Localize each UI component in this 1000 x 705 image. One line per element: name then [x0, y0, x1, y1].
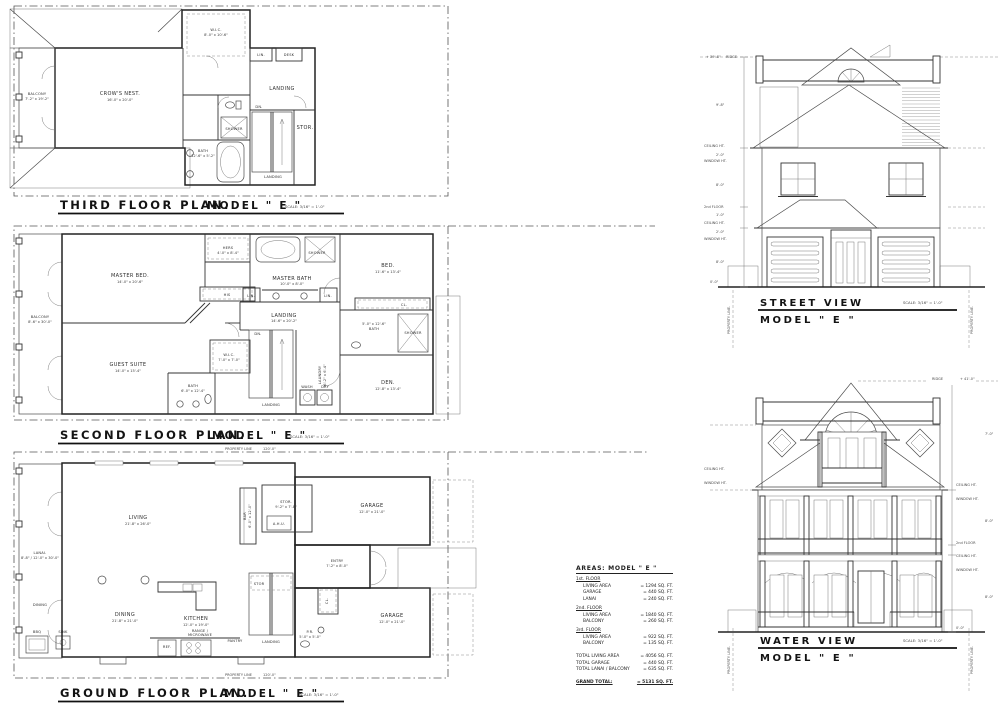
- room-label-guest: GUEST SUITE: [110, 362, 147, 368]
- dim-8-0-b: 8'-0": [716, 260, 725, 264]
- ceiling-ht-label: CEILING HT.: [956, 483, 977, 487]
- room-label-stor: STOR.: [297, 125, 314, 131]
- room-label-garage2: GARAGE: [380, 613, 403, 619]
- driveway: [398, 480, 476, 655]
- room-dim-wic: 7'-0" x 7'-0": [218, 358, 240, 362]
- areas-total-living: TOTAL LIVING AREA= 4056 SQ. FT.: [576, 654, 673, 661]
- window-right: [886, 163, 926, 197]
- room-label-entry: ENTRY: [331, 559, 344, 563]
- window-ht-label-left: WINDOW HT.: [704, 481, 727, 485]
- room-label-laundry: LAUNDRY: [318, 365, 322, 384]
- room-dim-kitchen: 12'-0" x 19'-0": [183, 623, 209, 627]
- street-view-caption: STREET VIEW SCALE: 3/16" = 1'-0" MODEL "…: [727, 290, 974, 348]
- entry-door: [858, 571, 884, 623]
- room-dim-dining: 21'-8" x 21'-0": [112, 619, 138, 623]
- room-dim-lanai: 8'-8" / 12'-0" x 30'-0": [21, 556, 59, 560]
- room-label-cl: CL.: [325, 598, 329, 604]
- ground-storey-porch: [758, 555, 942, 632]
- ridge-elev: + 41'-0": [960, 377, 975, 381]
- second-floor-plan: BALCONY 8'-6" x 30'-0" MASTER BED. 14'-0…: [14, 226, 655, 444]
- room-label-wic: W.I.C.: [210, 28, 221, 32]
- second-floor-labels: BALCONY 8'-6" x 30'-0" MASTER BED. 14'-0…: [28, 246, 422, 407]
- room-dim-living: 21'-8" x 26'-0": [125, 522, 151, 526]
- areas-section-1st: 1st. FLOOR: [576, 577, 673, 584]
- second-floor-label: 2nd FLOOR: [956, 541, 976, 545]
- room-label-stor: STOR.: [280, 500, 292, 504]
- room-dim-garage1: 12'-0" x 21'-0": [359, 510, 385, 514]
- garage-door-right: [878, 237, 934, 287]
- room-label-his: HIS: [224, 293, 231, 297]
- plan-title: GROUND FLOOR PLAN.: [60, 686, 250, 700]
- kitchen-fixtures: [98, 488, 256, 656]
- room-label-landing2: LANDING: [262, 403, 280, 407]
- areas-row: LANAI= 240 SQ. FT.: [576, 597, 673, 604]
- drawing-sheet: W.I.C. 8'-0" x 10'-6" LIN. DESK LANDING …: [0, 0, 1000, 705]
- front-door: [831, 230, 871, 287]
- room-label-master-bed: MASTER BED.: [111, 273, 149, 279]
- room-label-stor2: STOR: [254, 582, 265, 586]
- property-length-top: 120'-0": [263, 447, 276, 451]
- room-label-kitchen: KITCHEN: [184, 616, 208, 622]
- room-dim-laundry: 6'-2" x 6'-4": [323, 364, 327, 386]
- gable: [802, 48, 900, 85]
- areas-section-2nd: 2nd. FLOOR: [576, 606, 673, 613]
- water-view-caption: WATER VIEW SCALE: 3/16" = 1'-0" MODEL " …: [727, 628, 974, 692]
- stairs: [249, 330, 293, 398]
- room-label-hers: HERS: [223, 246, 234, 250]
- window-ht-label-2: WINDOW HT.: [956, 568, 979, 572]
- room-label-bbq: BBQ: [33, 630, 41, 634]
- areas-grand-total: GRAND TOTAL:= 5131 SQ. FT.: [576, 680, 673, 687]
- balcony-rail: [16, 234, 62, 414]
- roof-pitch-symbol: [870, 45, 890, 57]
- dim-7-0: 7'-0": [985, 432, 994, 436]
- room-dim-entry: 7'-2" x 8'-0": [326, 564, 348, 568]
- room-dim-den: 12'-8" x 13'-4": [375, 387, 401, 391]
- fence-left: [728, 610, 756, 632]
- third-floor-plan: W.I.C. 8'-0" x 10'-6" LIN. DESK LANDING …: [10, 6, 448, 214]
- window-ht-label: WINDOW HT.: [956, 497, 979, 501]
- master-bath-fixtures: [243, 237, 337, 302]
- areas-title: AREAS: MODEL " E ": [576, 565, 673, 574]
- fence-right: [940, 266, 970, 287]
- ground-storey: [762, 228, 940, 287]
- stairs: [252, 112, 292, 172]
- room-dim-range: MICROWAVE: [188, 633, 213, 637]
- second-storey-porch: [758, 490, 942, 555]
- room-label-crows-nest: CROW'S NEST.: [100, 91, 140, 97]
- room-label-bed: BED.: [381, 263, 394, 269]
- dim-2-0: 2'-0": [716, 153, 725, 157]
- room-dim-crows-nest: 16'-0" x 20'-0": [107, 98, 133, 102]
- room-dim-balcony: 7'-2" x 19'-2": [25, 97, 49, 101]
- room-label-cl: CL.: [401, 303, 407, 307]
- architectural-drawing: W.I.C. 8'-0" x 10'-6" LIN. DESK LANDING …: [0, 0, 1000, 705]
- room-label-lin: LIN.: [257, 53, 265, 57]
- zero-datum: 0'-0": [710, 280, 719, 284]
- water-view-elevation: RIDGE + 41'-0" 7'-0" CEILING HT. WINDOW …: [704, 377, 998, 692]
- dim-9-8: 9'-8": [716, 103, 725, 107]
- property-line-vertical-right: PROPERTY LINE.: [970, 646, 974, 674]
- room-label-dn: DN.: [255, 105, 262, 109]
- room-dim-wic: 8'-0" x 10'-6": [204, 33, 228, 37]
- room-dim-bath2: 5'-0" x 12'-6": [362, 322, 386, 326]
- room-label-balcony: BALCONY: [28, 92, 47, 96]
- ceiling-ht-label-2: CEILING HT.: [704, 221, 725, 225]
- plan-title: THIRD FLOOR PLAN.: [60, 198, 231, 212]
- scale-note: SCALE: 3/16" = 1'-0": [290, 434, 330, 439]
- ground-floor-plan: PROPERTY LINE 120'-0" PROPERTY LINE 120'…: [14, 447, 648, 702]
- exterior-walls: [55, 10, 315, 185]
- room-label-bath2: BATH: [369, 327, 379, 331]
- room-dim-pr: 5'-0" x 5'-0": [299, 635, 321, 639]
- dim-1-0: 1'-0": [716, 213, 725, 217]
- fence-left: [728, 266, 758, 287]
- third-floor-caption: THIRD FLOOR PLAN. MODEL " E " SCALE: 3/1…: [58, 198, 344, 214]
- property-line-vertical-right: PROPERTY LINE.: [970, 306, 974, 334]
- room-label-dry: DRY: [321, 385, 329, 389]
- room-label-landing: LANDING: [269, 86, 294, 92]
- dim-8-0: 8'-0": [716, 183, 725, 187]
- room-label-lin2: LIN.: [324, 294, 332, 298]
- diamond-window-left: [768, 429, 796, 457]
- ridge-elev: + 39'-8": [706, 55, 721, 59]
- ground-floor-caption: GROUND FLOOR PLAN. MODEL " E " SCALE: 3/…: [58, 686, 344, 702]
- room-dim-hers: 4'-0" x 8'-4": [217, 251, 239, 255]
- dim-2-0-b: 2'-0": [716, 230, 725, 234]
- third-floor-labels: W.I.C. 8'-0" x 10'-6" LIN. DESK LANDING …: [25, 28, 313, 179]
- room-label-ahu: A.H.U.: [273, 522, 285, 526]
- room-label-lin1: LIN.: [247, 294, 255, 298]
- ceiling-ht-label-left: CEILING HT.: [704, 467, 725, 471]
- room-label-living: LIVING: [129, 515, 148, 521]
- property-line-boundary: [14, 6, 448, 196]
- guest-bath-fixtures: [177, 395, 211, 408]
- room-dim-landing: 14'-6" x 20'-2": [271, 319, 297, 323]
- room-label-lanai: LANAI.: [33, 551, 46, 555]
- second-floor-label: 2nd FLOOR: [704, 205, 724, 209]
- room-dim-balcony: 8'-6" x 30'-0": [28, 320, 52, 324]
- room-label-landing2: LANDING: [264, 175, 282, 179]
- room-label-bar: BAR: [243, 512, 247, 520]
- property-line-boundary: [14, 452, 448, 678]
- areas-row: BALCONY= 135 SQ. FT.: [576, 641, 673, 648]
- room-label-landing: LANDING: [262, 640, 280, 644]
- gable: [800, 383, 900, 440]
- property-length-bottom: 120'-0": [263, 673, 276, 677]
- room-label-bath: BATH: [198, 149, 208, 153]
- window-left: [778, 163, 818, 197]
- model-label: MODEL " E ": [760, 653, 856, 664]
- room-label-ref: REF.: [163, 645, 171, 649]
- bath-fixtures: [187, 101, 247, 182]
- elevation-title: WATER VIEW: [760, 636, 858, 647]
- exterior-walls: [62, 461, 430, 664]
- room-label-dining: DINING: [115, 612, 135, 618]
- scale-note: SCALE: 3/16" = 1'-0": [285, 204, 325, 209]
- room-label-balcony: BALCONY: [31, 315, 50, 319]
- room-label-bath1: BATH: [188, 384, 198, 388]
- ridge-label: RIDGE: [726, 55, 737, 59]
- dim-8-0: 8'-0": [985, 519, 994, 523]
- upper-wall-right: [902, 87, 940, 147]
- ceiling-ht-label-2: CEILING HT.: [956, 554, 977, 558]
- areas-section-3rd: 3rd. FLOOR: [576, 628, 673, 635]
- room-label-garage1: GARAGE: [360, 503, 383, 509]
- street-view-elevation: + 39'-8" RIDGE 9'-8" CEILING HT. 2'-0" W…: [700, 45, 998, 348]
- scale-note: SCALE: 3/16" = 1'-0": [903, 300, 943, 305]
- room-dim-guest: 14'-0" x 15'-4": [115, 369, 141, 373]
- property-line-label-bottom: PROPERTY LINE: [225, 673, 252, 677]
- room-label-wash: WASH: [301, 385, 313, 389]
- dim-8-0-b: 8'-0": [985, 595, 994, 599]
- areas-row: BALCONY= 260 SQ. FT.: [576, 619, 673, 626]
- property-line-vertical-left: PROPERTY LINE.: [727, 646, 731, 674]
- interior-walls: [183, 14, 315, 185]
- porch-roof: [757, 200, 877, 228]
- property-line-label-top: PROPERTY LINE: [225, 447, 252, 451]
- room-label-shower2: SHOWER: [404, 331, 422, 335]
- room-label-wic: W.I.C.: [223, 353, 234, 357]
- ridge-label: RIDGE: [932, 377, 943, 381]
- room-label-dining-lanai: DINING: [33, 603, 47, 607]
- elevation-title: STREET VIEW: [760, 298, 864, 309]
- room-dim-stor: 9'-2" x 7'-8": [275, 505, 297, 509]
- upper-wall-left: [760, 87, 798, 147]
- scale-note: SCALE: 3/16" = 1'-0": [903, 638, 943, 643]
- ground-floor-labels: LANAI. 8'-8" / 12'-0" x 30'-0" DINING BB…: [21, 500, 405, 649]
- room-dim-bath: 12'-6" x 5'-2": [191, 154, 215, 158]
- model-label: MODEL " E ": [760, 315, 856, 326]
- areas-table: AREAS: MODEL " E " 1st. FLOOR LIVING ARE…: [576, 565, 673, 687]
- areas-total-lanai: TOTAL LANAI / BALCONY= 635 SQ. FT.: [576, 667, 673, 674]
- areas-row: GARAGE= 440 SQ. FT.: [576, 590, 673, 597]
- room-label-pr: P.R.: [306, 630, 313, 634]
- laundry-appliances: [300, 390, 332, 405]
- zero-datum: 0'-0": [956, 626, 965, 630]
- second-floor-caption: SECOND FLOOR PLAN. MODEL " E " SCALE: 3/…: [58, 428, 344, 444]
- room-label-dn: DN.: [254, 332, 261, 336]
- property-line-vertical-left: PROPERTY LINE.: [727, 306, 731, 334]
- room-dim-master-bed: 14'-0" x 20'-6": [117, 280, 143, 284]
- room-label-desk: DESK: [284, 53, 295, 57]
- room-dim-master-bath: 10'-0" x 8'-0": [280, 282, 304, 286]
- second-storey: [762, 148, 940, 228]
- room-dim-bath1: 6'-0" x 12'-4": [181, 389, 205, 393]
- room-label-sink: SINK: [58, 630, 68, 634]
- room-label-pantry: PANTRY: [228, 639, 244, 643]
- room-label-den: DEN.: [381, 380, 395, 386]
- window-ht-label: WINDOW HT.: [704, 159, 727, 163]
- ceiling-ht-label: CEILING HT.: [704, 144, 725, 148]
- third-storey-balcony: [818, 432, 886, 487]
- room-dim-bar: 6'-0" x 12'-0": [248, 504, 252, 528]
- room-dim-bed: 11'-6" x 13'-4": [375, 270, 401, 274]
- room-dim-garage2: 12'-0" x 21'-0": [379, 620, 405, 624]
- window-ht-label-2: WINDOW HT.: [704, 237, 727, 241]
- scale-note: SCALE: 3/16" = 1'-0": [299, 692, 339, 697]
- diamond-window-right: [906, 429, 934, 457]
- room-label-shower: SHOWER: [225, 127, 243, 131]
- room-label-shower1: SHOWER: [308, 251, 326, 255]
- garage-door-left: [767, 237, 823, 287]
